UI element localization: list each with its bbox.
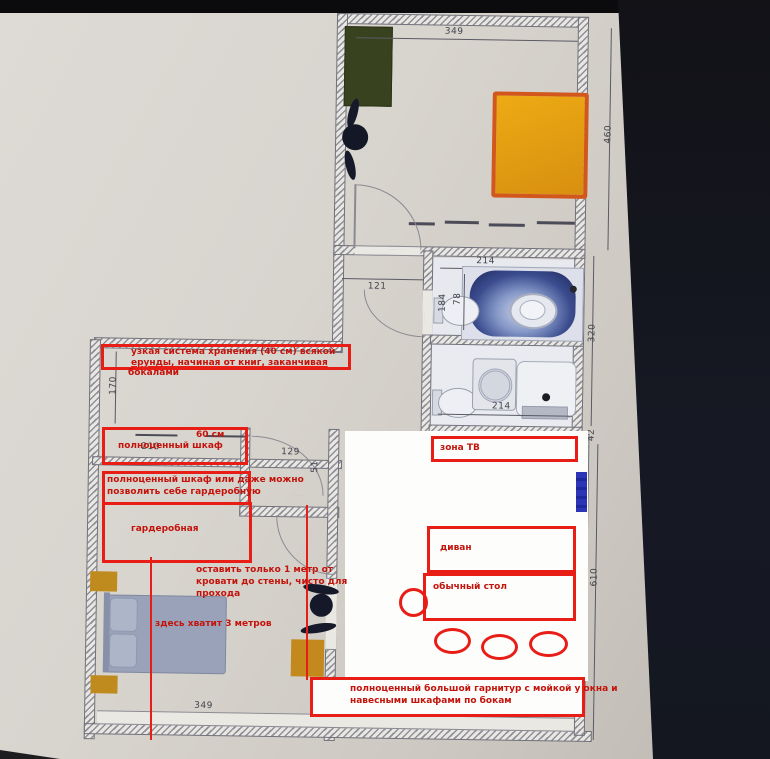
wardrobe-label: полноценный шкаф	[118, 441, 223, 453]
dim-upper-right: 460	[603, 125, 613, 144]
wardrobe-or-line1: полноценный шкаф или даже можно	[107, 475, 304, 487]
wardrobe-size: 60 см	[196, 430, 224, 442]
plant-icon	[342, 150, 358, 181]
dim-right-height: 610	[589, 568, 599, 587]
dim-closet-width: 129	[281, 447, 300, 457]
closet-dash	[489, 223, 525, 227]
dim-bath-length: 184	[438, 293, 448, 312]
passage-line2: кровати до стены, чисто для	[196, 577, 347, 589]
guide-line-left	[150, 557, 152, 740]
faucet-icon	[570, 286, 577, 293]
storage-note-line3: бокалами	[128, 368, 179, 380]
kitchen-line2: навесными шкафами по бокам	[350, 696, 512, 708]
dim-line	[342, 278, 424, 280]
closet-dash	[445, 221, 479, 225]
wardrobe-or-line2: позволить себе гардеробную	[107, 487, 261, 499]
dim-top-width: 349	[445, 27, 464, 37]
passage-line1: оставить только 1 метр от	[196, 565, 333, 577]
dim-left-height: 170	[108, 376, 118, 395]
nightstand	[90, 571, 117, 591]
dim-mid-right: 320	[587, 324, 597, 343]
drain-dot	[542, 393, 550, 401]
storage-note-line1: узкая система хранения (40 см) всякой	[131, 347, 335, 359]
dim-bottom-width: 349	[194, 701, 213, 711]
dim-bath-gap: 78	[453, 293, 463, 306]
bed-note: здесь хватит 3 метров	[155, 619, 272, 631]
dim-closet-depth: 51	[310, 460, 320, 473]
orange-rug	[491, 91, 589, 198]
chair-circle	[399, 588, 428, 617]
door-arc	[354, 184, 422, 250]
pillow	[109, 633, 138, 667]
chair-oval	[434, 628, 471, 654]
dim-line	[593, 444, 599, 740]
bidet-bowl-inner	[519, 300, 545, 320]
plant-icon	[342, 124, 368, 150]
kitchen-line1: полноценный большой гарнитур с мойкой у …	[350, 684, 618, 696]
tv-zone-label: зона ТВ	[440, 443, 480, 455]
table-box	[423, 573, 576, 621]
wall-top	[338, 14, 588, 27]
door-arc	[363, 289, 425, 337]
nightstand	[90, 675, 117, 693]
dim-bath-width: 214	[476, 256, 495, 266]
sofa-label: диван	[440, 543, 472, 555]
pillow	[109, 597, 138, 631]
sink-base	[522, 406, 568, 420]
dim-corridor: 42	[587, 429, 597, 442]
chair-oval	[481, 634, 518, 660]
passage-line3: прохода	[196, 589, 240, 601]
dressing-label: гардеробная	[131, 524, 199, 536]
dim-laundry-width: 214	[492, 401, 511, 411]
closet-dash	[537, 221, 575, 225]
chair-oval	[529, 631, 568, 657]
floorplan-photo: 349 460 121 129 51 214 184 78	[0, 0, 770, 759]
guide-line-right	[306, 505, 308, 680]
table-label: обычный стол	[433, 582, 507, 594]
radiator	[576, 472, 587, 512]
